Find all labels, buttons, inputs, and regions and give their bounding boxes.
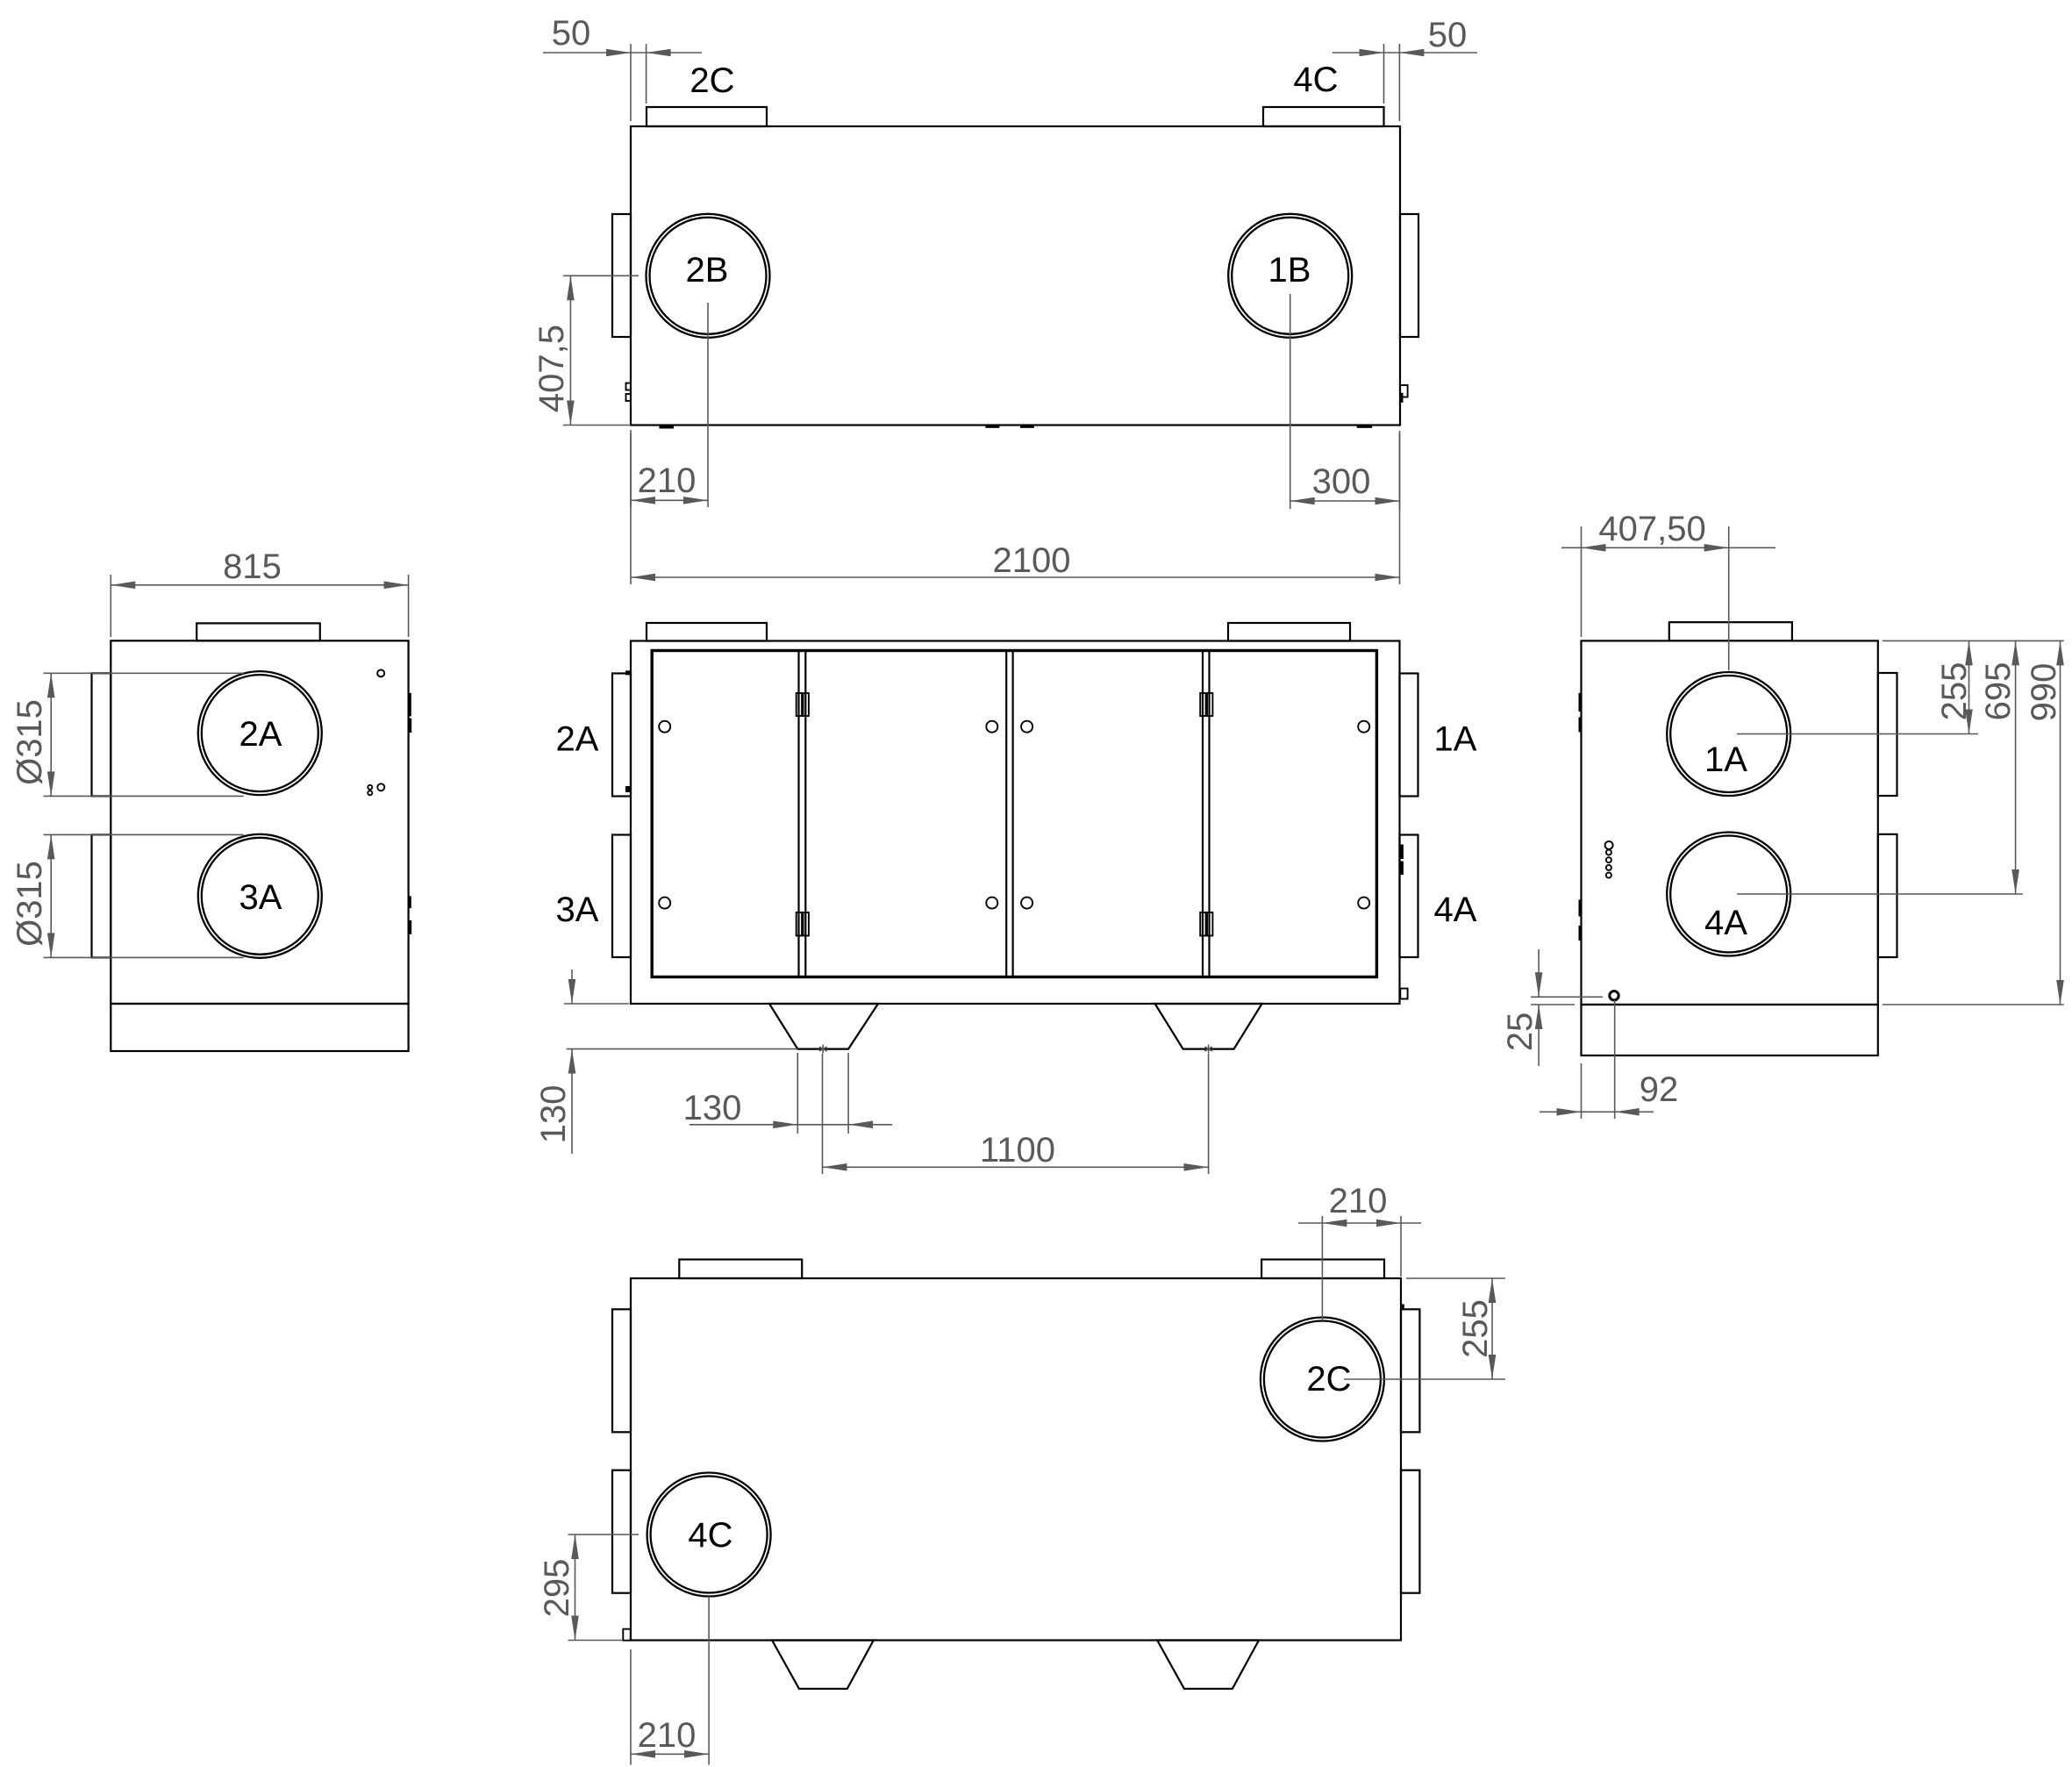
svg-text:2C: 2C xyxy=(689,61,734,100)
svg-text:3A: 3A xyxy=(239,878,282,917)
svg-text:50: 50 xyxy=(552,14,591,53)
svg-text:4C: 4C xyxy=(688,1516,732,1555)
svg-text:210: 210 xyxy=(638,461,697,500)
svg-text:1A: 1A xyxy=(1704,740,1747,779)
svg-text:3A: 3A xyxy=(556,891,599,929)
svg-text:210: 210 xyxy=(638,1716,697,1755)
svg-text:130: 130 xyxy=(683,1089,742,1127)
svg-text:300: 300 xyxy=(1312,462,1371,501)
svg-text:2A: 2A xyxy=(239,715,282,754)
svg-text:695: 695 xyxy=(1979,662,2018,721)
svg-text:407,50: 407,50 xyxy=(1598,510,1705,548)
svg-text:92: 92 xyxy=(1640,1070,1679,1109)
svg-text:2100: 2100 xyxy=(993,541,1071,580)
svg-text:25: 25 xyxy=(1501,1012,1540,1052)
svg-text:50: 50 xyxy=(1428,16,1468,54)
svg-text:255: 255 xyxy=(1935,662,1974,721)
svg-text:990: 990 xyxy=(2025,663,2063,722)
svg-text:Ø315: Ø315 xyxy=(11,861,49,947)
svg-text:4C: 4C xyxy=(1293,61,1338,99)
svg-text:2A: 2A xyxy=(556,719,599,758)
svg-text:2B: 2B xyxy=(686,251,729,290)
svg-text:295: 295 xyxy=(538,1559,576,1618)
svg-text:4A: 4A xyxy=(1704,904,1747,942)
svg-text:255: 255 xyxy=(1456,1299,1495,1358)
svg-text:210: 210 xyxy=(1329,1182,1388,1220)
svg-text:815: 815 xyxy=(223,547,282,586)
svg-text:130: 130 xyxy=(534,1085,573,1144)
svg-text:4A: 4A xyxy=(1434,891,1477,929)
svg-text:1B: 1B xyxy=(1268,251,1311,290)
svg-text:Ø315: Ø315 xyxy=(11,699,49,785)
svg-text:1A: 1A xyxy=(1434,719,1477,758)
svg-text:407,5: 407,5 xyxy=(532,325,571,412)
svg-text:1100: 1100 xyxy=(980,1131,1055,1170)
